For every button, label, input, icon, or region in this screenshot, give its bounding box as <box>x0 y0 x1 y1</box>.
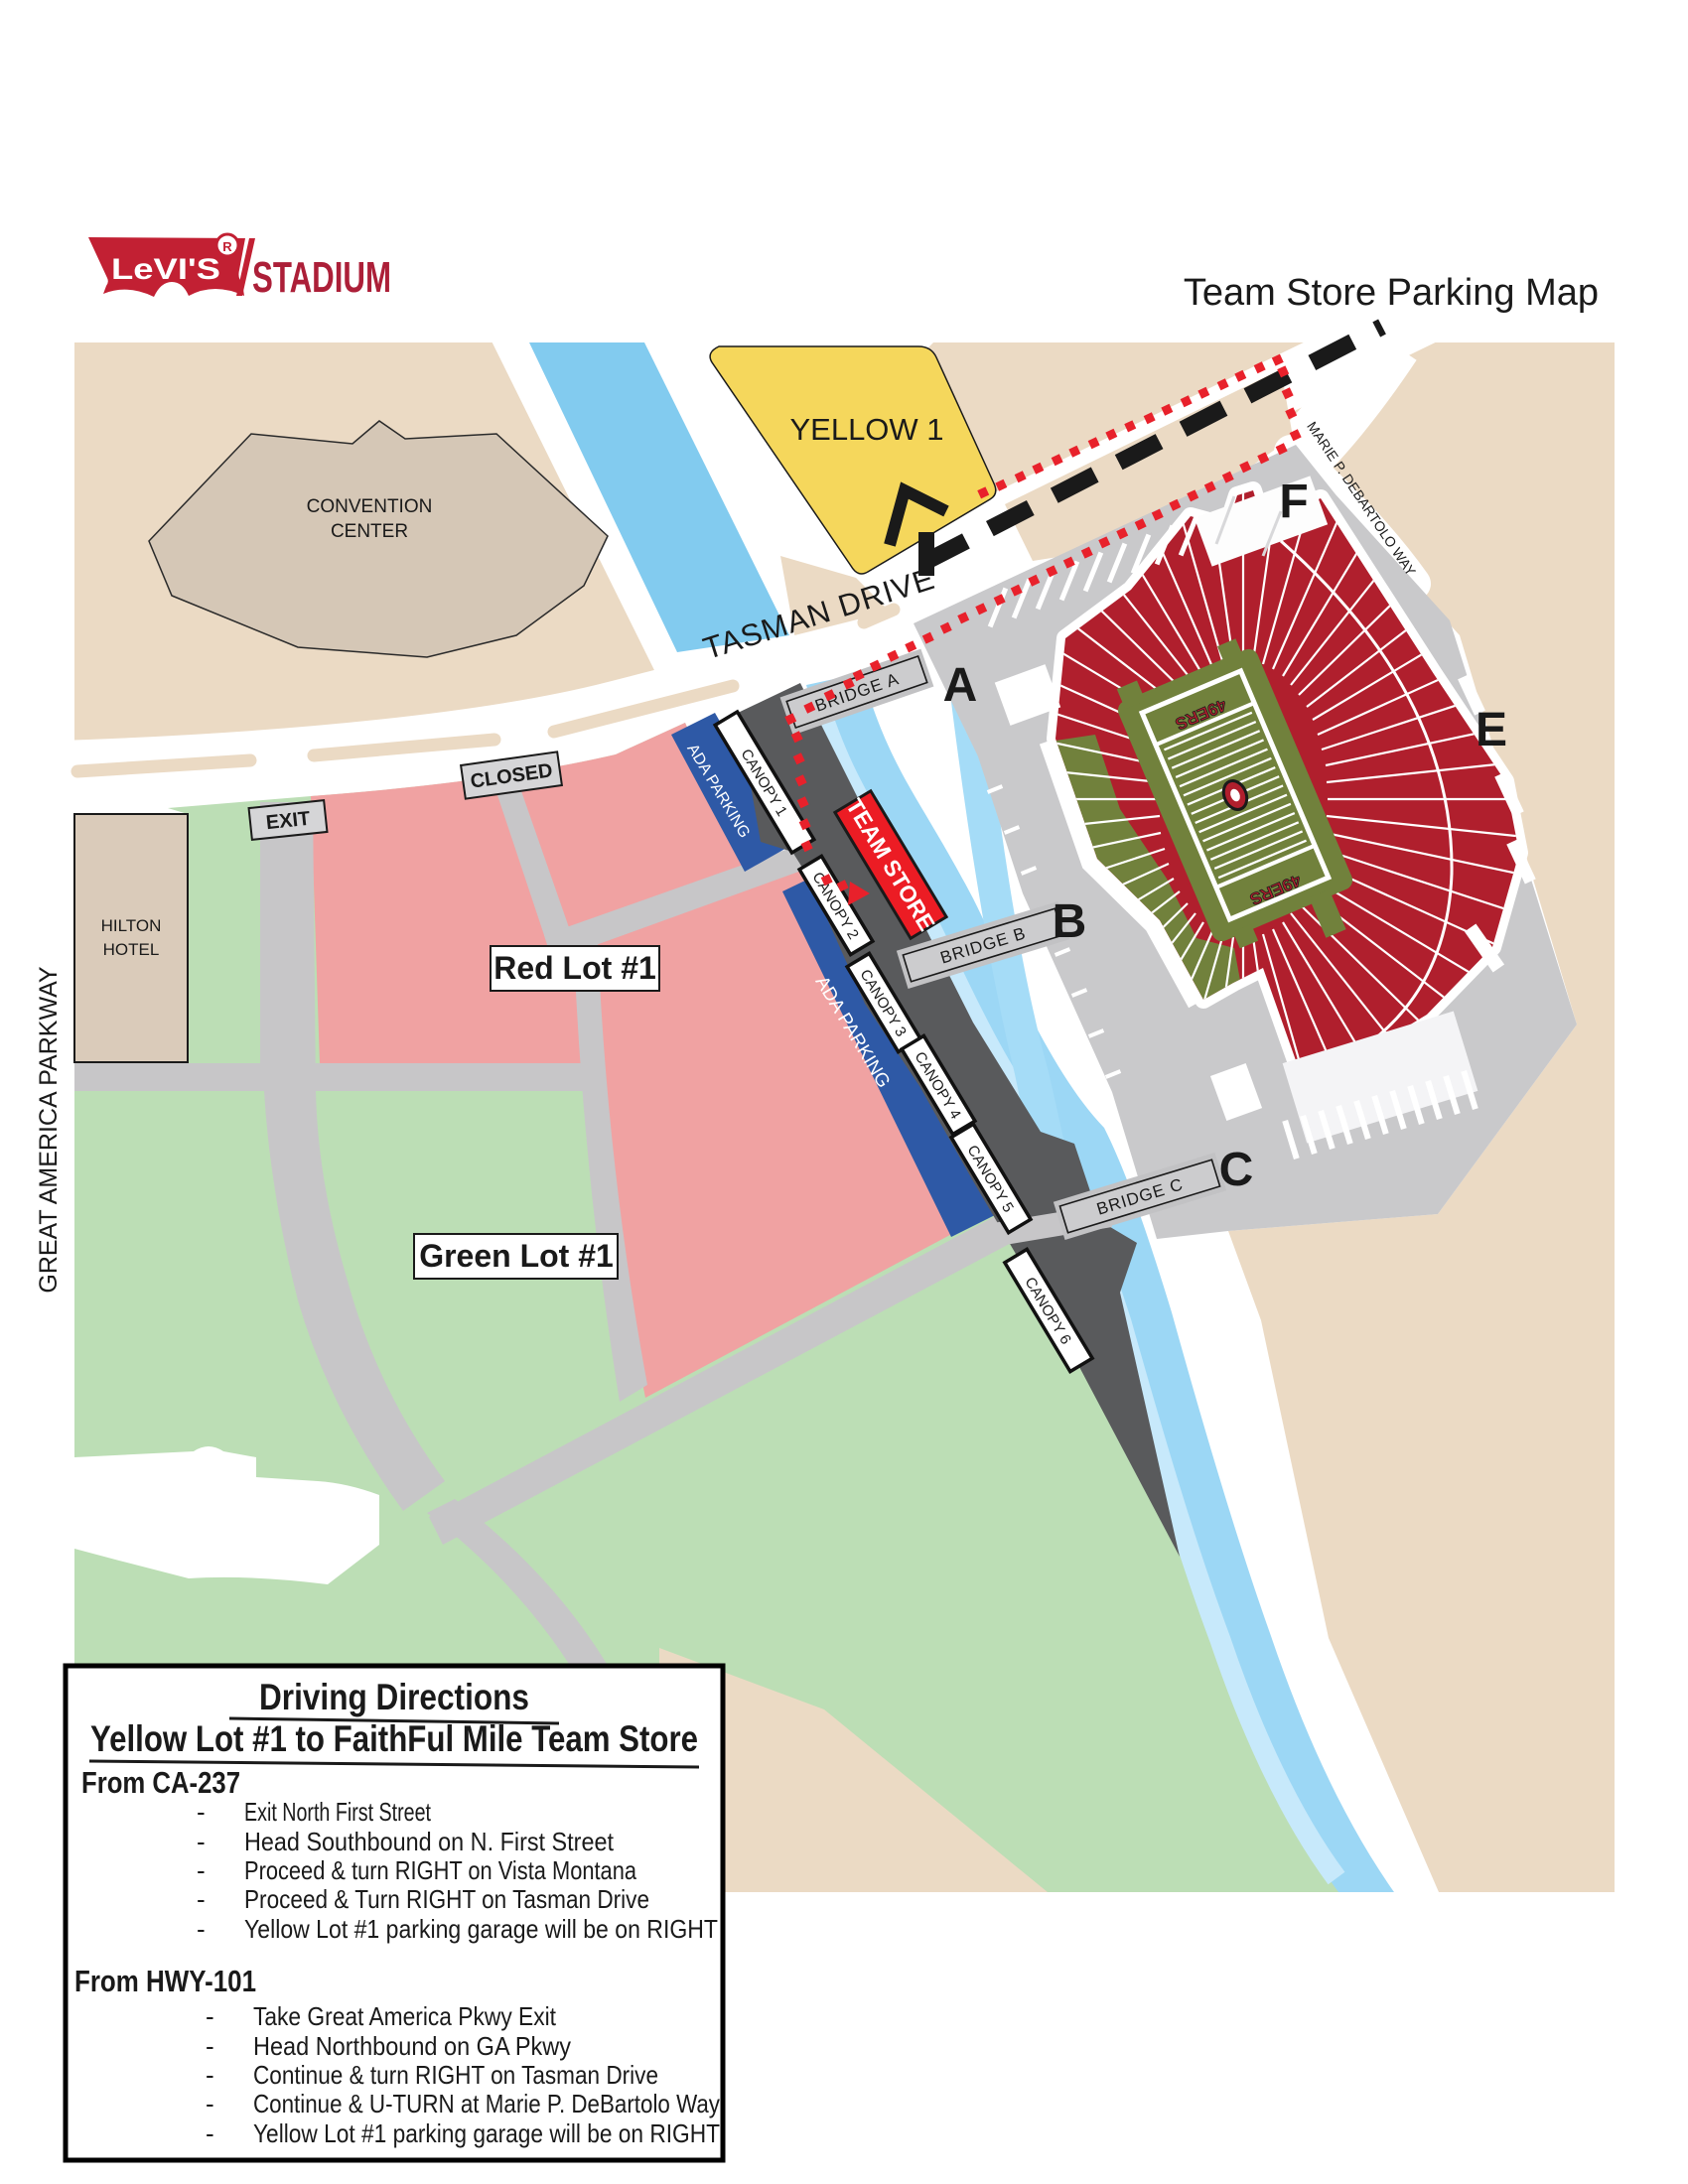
svg-text:B: B <box>1053 895 1087 948</box>
svg-text:Take Great America Pkwy Exit: Take Great America Pkwy Exit <box>253 2001 557 2031</box>
svg-text:HOTEL: HOTEL <box>103 940 160 959</box>
svg-text:C: C <box>1219 1144 1254 1196</box>
svg-text:-: - <box>197 1914 206 1944</box>
svg-text:-: - <box>197 1855 206 1885</box>
svg-text:Proceed & Turn RIGHT on Tasman: Proceed & Turn RIGHT on Tasman Drive <box>244 1884 649 1914</box>
svg-text:-: - <box>206 2001 214 2031</box>
svg-text:HILTON: HILTON <box>101 916 162 935</box>
svg-text:Proceed & turn RIGHT on Vista: Proceed & turn RIGHT on Vista Montana <box>244 1855 636 1885</box>
svg-text:F: F <box>1279 476 1308 528</box>
svg-text:Exit North First Street: Exit North First Street <box>244 1797 432 1827</box>
svg-text:EXIT: EXIT <box>265 808 312 835</box>
svg-text:Head Southbound on N. First St: Head Southbound on N. First Street <box>244 1827 615 1856</box>
svg-text:GREAT AMERICA PARKWAY: GREAT AMERICA PARKWAY <box>35 966 63 1294</box>
svg-text:Continue & turn RIGHT on Tasma: Continue & turn RIGHT on Tasman Drive <box>253 2060 658 2090</box>
svg-text:Yellow Lot #1 to FaithFul Mile: Yellow Lot #1 to FaithFul Mile Team Stor… <box>90 1718 698 1759</box>
svg-text:-: - <box>206 2118 214 2148</box>
svg-text:LeVI'S: LeVI'S <box>111 253 220 286</box>
svg-text:CENTER: CENTER <box>331 521 408 542</box>
svg-text:STADIUM: STADIUM <box>252 253 391 302</box>
svg-text:Yellow Lot #1 parking garage w: Yellow Lot #1 parking garage will be on … <box>253 2118 720 2148</box>
svg-text:Yellow Lot #1 parking garage w: Yellow Lot #1 parking garage will be on … <box>244 1914 718 1944</box>
svg-text:Red Lot #1: Red Lot #1 <box>493 950 656 986</box>
svg-text:E: E <box>1476 704 1507 756</box>
svg-text:-: - <box>206 2089 214 2118</box>
svg-text:-: - <box>197 1884 206 1914</box>
svg-text:-: - <box>197 1797 206 1827</box>
svg-text:From HWY-101: From HWY-101 <box>74 1964 256 1998</box>
svg-text:R: R <box>222 239 232 254</box>
svg-text:CONVENTION: CONVENTION <box>307 496 433 517</box>
svg-text:A: A <box>943 659 978 712</box>
svg-text:Head Northbound on GA Pkwy: Head Northbound on GA Pkwy <box>253 2031 571 2061</box>
svg-text:YELLOW 1: YELLOW 1 <box>789 412 943 447</box>
svg-text:-: - <box>197 1827 206 1856</box>
svg-text:From CA-237: From CA-237 <box>81 1765 240 1800</box>
svg-text:Continue & U-TURN at Marie P.: Continue & U-TURN at Marie P. DeBartolo … <box>253 2089 720 2118</box>
svg-text:-: - <box>206 2060 214 2090</box>
svg-text:-: - <box>206 2031 214 2061</box>
svg-text:Green Lot #1: Green Lot #1 <box>419 1238 614 1274</box>
svg-text:Team Store Parking Map: Team Store Parking Map <box>1184 272 1599 314</box>
svg-text:Driving Directions: Driving Directions <box>259 1677 529 1717</box>
